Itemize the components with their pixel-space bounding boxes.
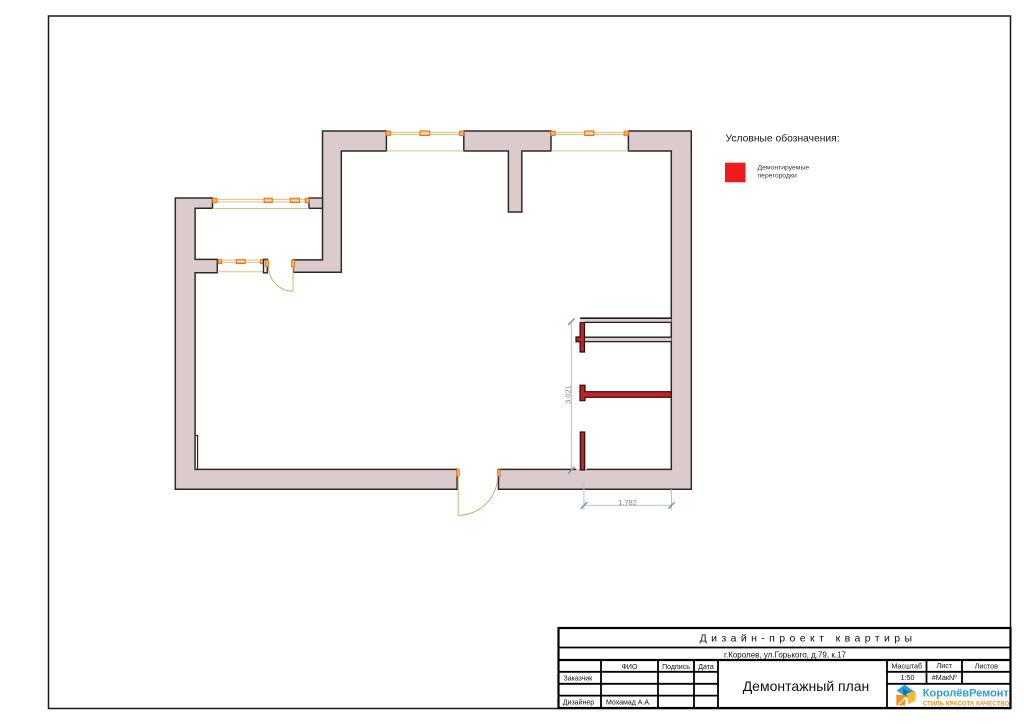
svg-text:Дизайн-проект квартиры: Дизайн-проект квартиры xyxy=(700,633,917,645)
svg-text:г.Королев, ул.Горького, д.79,: г.Королев, ул.Горького, д.79, к.17 xyxy=(724,651,846,660)
svg-text:Заказчик: Заказчик xyxy=(564,676,594,683)
svg-text:перегородки: перегородки xyxy=(758,173,797,180)
svg-text:1.782: 1.782 xyxy=(618,498,637,507)
svg-text:ФИО: ФИО xyxy=(622,664,638,671)
svg-text:1:50: 1:50 xyxy=(901,673,915,682)
svg-text:Подпись: Подпись xyxy=(662,664,690,671)
svg-text:Мохамад А.А.: Мохамад А.А. xyxy=(606,700,651,707)
svg-text:СТИЛЬ КРАСОТА КАЧЕСТВО: СТИЛЬ КРАСОТА КАЧЕСТВО xyxy=(923,702,1010,708)
svg-text:КоролёвРемонт: КоролёвРемонт xyxy=(923,688,1010,700)
svg-text:Масштаб: Масштаб xyxy=(891,662,922,671)
svg-text:Демонтажный план: Демонтажный план xyxy=(743,678,870,694)
svg-text:Условные обозначения:: Условные обозначения: xyxy=(726,133,840,145)
svg-text:Демонтируемые: Демонтируемые xyxy=(758,165,810,172)
svg-text:Листов: Листов xyxy=(975,661,999,670)
svg-text:Дата: Дата xyxy=(698,664,714,671)
svg-text:#МакNº: #МакNº xyxy=(932,673,957,682)
svg-text:Дизайнер: Дизайнер xyxy=(563,699,594,707)
svg-text:Лист: Лист xyxy=(936,661,952,670)
svg-text:3.021: 3.021 xyxy=(564,385,573,404)
